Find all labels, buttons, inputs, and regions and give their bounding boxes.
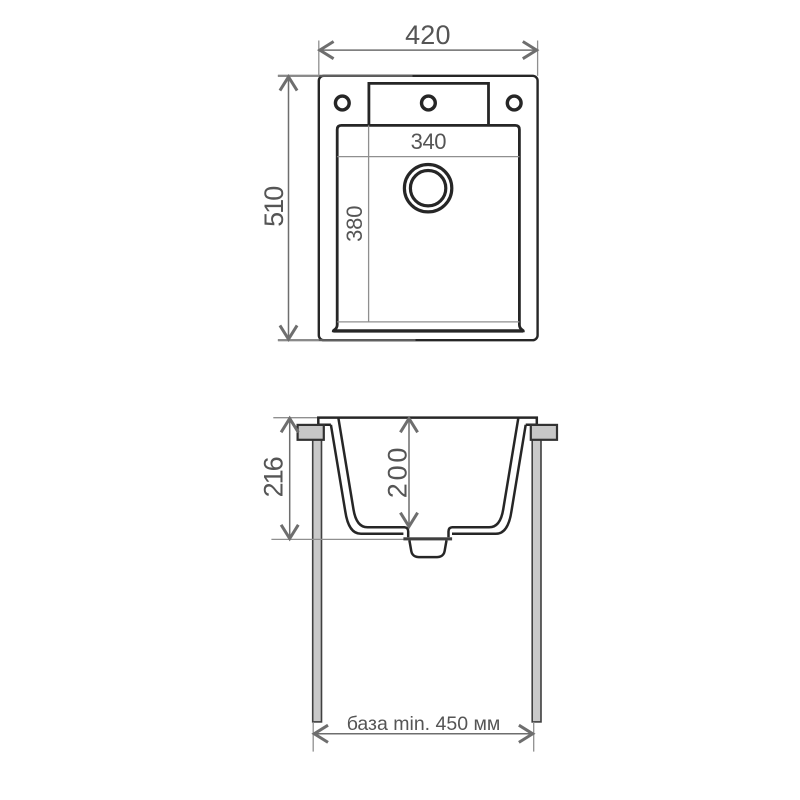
svg-text:420: 420 [405, 20, 451, 50]
svg-text:216: 216 [259, 457, 289, 497]
svg-text:200: 200 [383, 445, 413, 498]
svg-text:510: 510 [259, 187, 289, 227]
svg-text:база min. 450 мм: база min. 450 мм [347, 713, 501, 735]
svg-text:380: 380 [342, 206, 367, 242]
svg-text:340: 340 [411, 129, 447, 154]
